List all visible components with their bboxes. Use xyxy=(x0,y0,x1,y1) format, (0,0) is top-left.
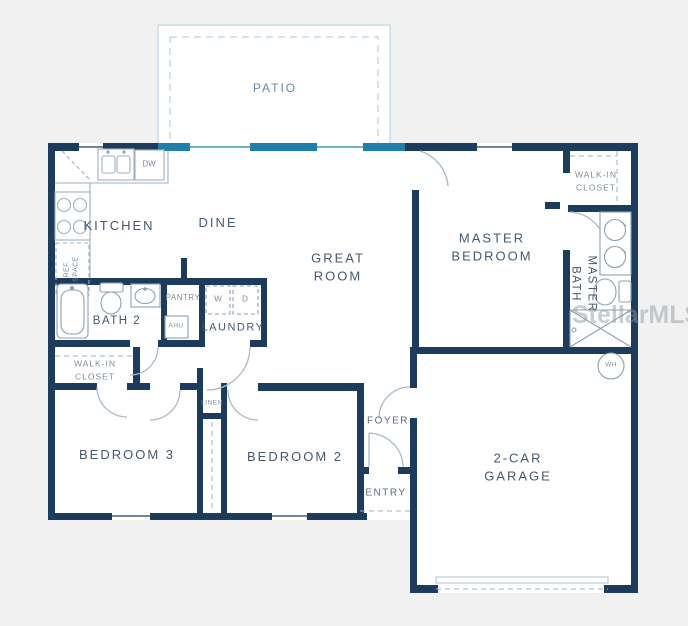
wall-right xyxy=(631,143,638,593)
sink-bath2 xyxy=(131,284,160,307)
room-label-dine: DINE xyxy=(198,214,237,232)
kitchen-sink xyxy=(98,149,134,180)
wall-master-bottom xyxy=(412,347,638,354)
wall-left xyxy=(48,143,55,520)
room-label-bedroom2: BEDROOM 2 xyxy=(247,448,343,466)
wall-foyer-left xyxy=(357,383,364,520)
wall-linen-stub xyxy=(197,368,203,383)
floor-areas xyxy=(48,25,638,593)
wall-master-closet-left xyxy=(563,143,570,173)
wall-master-closet-bottom xyxy=(568,205,631,212)
wall-linen-bottom xyxy=(197,413,227,419)
bathtub xyxy=(57,284,88,338)
wall-closet2-bottom-a xyxy=(48,383,97,390)
wall-pantry-bottom xyxy=(158,340,205,347)
toilet-bath2 xyxy=(100,283,123,314)
room-label-closet2: WALK-IN CLOSET xyxy=(74,357,116,383)
room-label-foyer: FOYER xyxy=(367,414,409,428)
room-label-master-closet: WALK-IN CLOSET xyxy=(575,168,617,194)
wall-entry-left-stub xyxy=(357,467,369,474)
wall-garage-bottom-left xyxy=(410,585,438,593)
wall-bed3-top-b xyxy=(180,383,197,390)
label-dryer: D xyxy=(242,295,248,306)
stellar-mls-watermark: StellarMLS xyxy=(572,301,688,330)
label-washer: W xyxy=(214,295,222,306)
room-label-bedroom3: BEDROOM 3 xyxy=(79,446,175,464)
wall-pantry-laundry xyxy=(199,278,205,347)
wall-bed2-top xyxy=(258,383,364,391)
room-label-kitchen: KITCHEN xyxy=(83,217,154,235)
room-label-master-bedroom: MASTER BEDROOM xyxy=(451,229,532,264)
label-dishwasher: DW xyxy=(142,160,155,171)
room-label-bath2: BATH 2 xyxy=(93,314,141,330)
garage-door-panel xyxy=(436,577,608,583)
wall-bottom-left xyxy=(48,513,367,520)
floor-plan: PATIO KITCHEN DINE GREAT ROOM MASTER BED… xyxy=(0,0,688,626)
room-label-garage: 2-CAR GARAGE xyxy=(484,449,552,484)
label-ahu: AHU xyxy=(168,323,183,332)
wall-garage-left-lower xyxy=(410,418,417,585)
room-label-pantry: PANTRY xyxy=(166,292,201,304)
wall-bed3-top-a xyxy=(140,383,150,390)
room-label-patio: PATIO xyxy=(253,80,297,96)
wall-closet2-bottom-b xyxy=(127,383,140,390)
room-label-linen: LINEN xyxy=(201,400,223,409)
label-water-heater: WH xyxy=(605,362,617,371)
wall-laundry-right xyxy=(261,278,267,347)
wall-entry-right-stub xyxy=(398,467,410,474)
wall-laundry-bottom xyxy=(250,340,267,347)
room-label-entry: ENTRY xyxy=(365,486,406,500)
wall-pantry-top-stub xyxy=(181,258,187,280)
wall-greatroom-master xyxy=(412,190,419,347)
wall-master-bath-jamb xyxy=(545,202,560,209)
wall-garage-bottom-right xyxy=(604,585,638,593)
room-label-great-room: GREAT ROOM xyxy=(311,249,365,284)
master-vanity xyxy=(600,212,631,275)
room-label-laundry: LAUNDRY xyxy=(202,321,265,336)
wall-bath2-bottom xyxy=(48,340,130,347)
label-ref-space: REF. SPACE xyxy=(63,256,82,282)
